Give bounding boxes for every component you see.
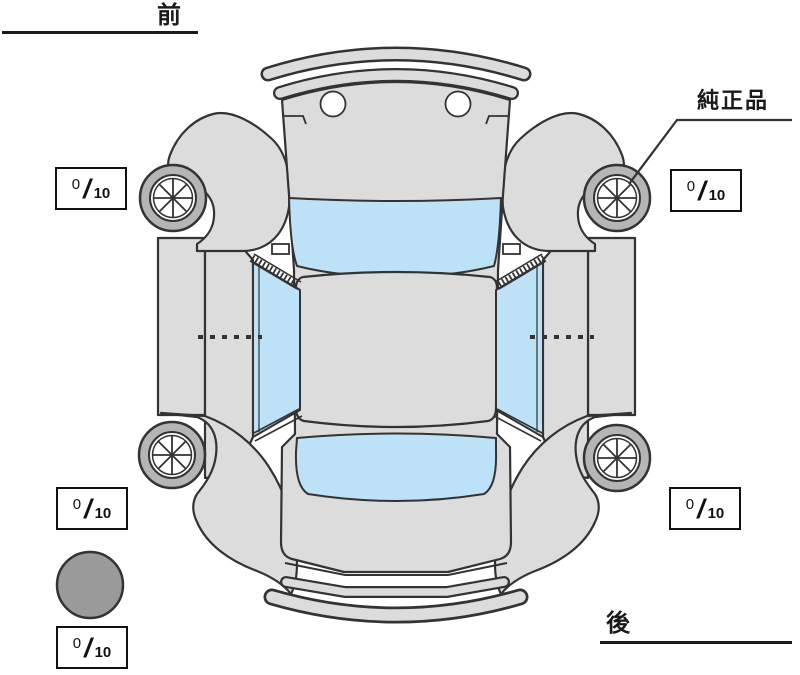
tread-max: 10: [95, 644, 112, 661]
wheel-front-left: [140, 165, 206, 231]
front-label: 前: [157, 4, 182, 28]
tread-max: 10: [94, 185, 111, 202]
rear-window: [296, 434, 496, 502]
tread-score-box-front-left: 0/10: [55, 167, 127, 210]
tread-max: 10: [708, 505, 725, 522]
tread-value: 0: [687, 178, 695, 195]
wheel-rear-left: [139, 422, 205, 488]
tread-value: 0: [73, 496, 81, 513]
car-top-view-svg: [0, 0, 800, 675]
tread-score-box-rear-left: 0/10: [56, 487, 128, 530]
windshield: [289, 198, 501, 277]
genuine-part-label: 純正品: [697, 90, 769, 112]
wheel-rear-right: [584, 425, 650, 491]
right-side-window: [496, 262, 543, 437]
front-label-underline: [2, 31, 198, 34]
tread-score-box-front-right: 0/10: [670, 169, 742, 212]
tread-max: 10: [709, 187, 726, 204]
vehicle-condition-diagram: 前 後 純正品 0/10 0/10 0/10 0/10 0/10: [0, 0, 800, 675]
left-side-window: [253, 262, 300, 437]
tread-value: 0: [72, 176, 80, 193]
rear-label-underline: [600, 641, 792, 644]
tread-score-box-spare: 0/10: [56, 626, 128, 669]
rear-label: 後: [606, 612, 631, 636]
tread-value: 0: [686, 496, 694, 513]
left-pillar-base: [272, 244, 289, 254]
left-sill-panel: [158, 238, 205, 415]
right-pillar-base: [503, 244, 520, 254]
right-headlamp-washer: [446, 92, 471, 117]
spare-tire-icon: [57, 552, 123, 618]
tread-value: 0: [73, 635, 81, 652]
right-sill-panel: [588, 238, 635, 415]
roof: [296, 272, 497, 427]
wheel-front-right: [584, 165, 650, 231]
tread-max: 10: [95, 505, 112, 522]
tread-score-box-rear-right: 0/10: [669, 487, 741, 530]
left-headlamp-washer: [321, 92, 346, 117]
